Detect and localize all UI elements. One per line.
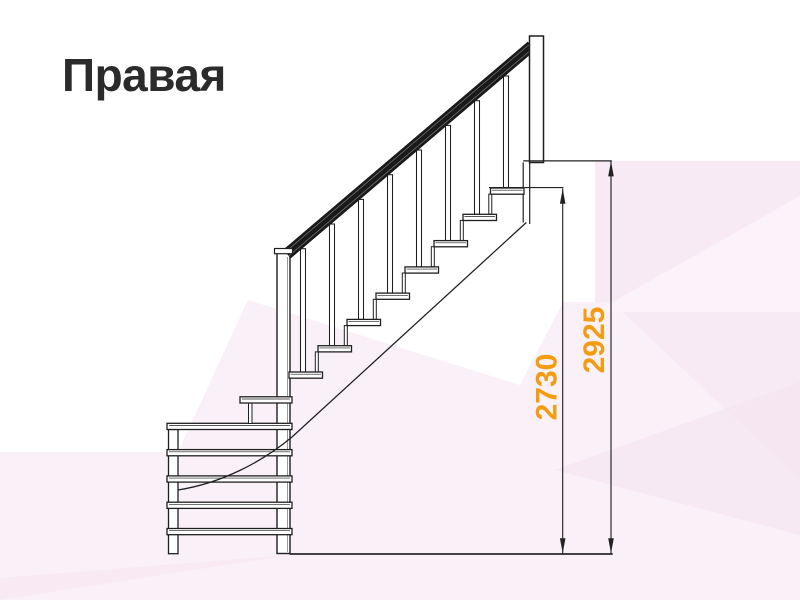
tread xyxy=(405,267,439,273)
baluster xyxy=(301,249,306,372)
handrail xyxy=(285,44,533,256)
tread xyxy=(167,476,292,482)
riser xyxy=(460,220,463,240)
tread xyxy=(376,293,410,299)
baluster xyxy=(359,199,364,319)
arrowhead-icon xyxy=(560,189,566,204)
newel-post-top xyxy=(530,36,544,163)
riser xyxy=(489,194,492,214)
dimension-label: 2730 xyxy=(531,354,564,421)
riser xyxy=(373,299,376,319)
riser xyxy=(431,247,434,267)
tread xyxy=(167,502,292,508)
tread xyxy=(347,319,381,325)
tread xyxy=(289,372,323,378)
diagram-canvas: 2730 2925 Правая xyxy=(0,0,800,600)
baluster xyxy=(504,76,509,188)
tread xyxy=(240,397,292,403)
tread xyxy=(491,188,525,194)
riser xyxy=(402,273,405,293)
tread xyxy=(167,529,292,535)
tread xyxy=(318,346,352,352)
baluster xyxy=(446,125,451,240)
page-title: Правая xyxy=(62,48,226,102)
baluster xyxy=(475,101,480,215)
tread xyxy=(167,423,292,429)
background-pattern xyxy=(0,161,800,600)
riser xyxy=(344,326,347,346)
riser xyxy=(315,352,318,372)
baluster xyxy=(417,150,422,267)
baluster xyxy=(249,403,253,424)
tread xyxy=(434,241,468,247)
newel-post-cap xyxy=(275,249,293,254)
baluster xyxy=(388,175,393,293)
tread xyxy=(463,214,497,220)
balusters xyxy=(301,76,509,372)
baluster xyxy=(330,224,335,346)
dimension-label: 2925 xyxy=(578,307,611,374)
